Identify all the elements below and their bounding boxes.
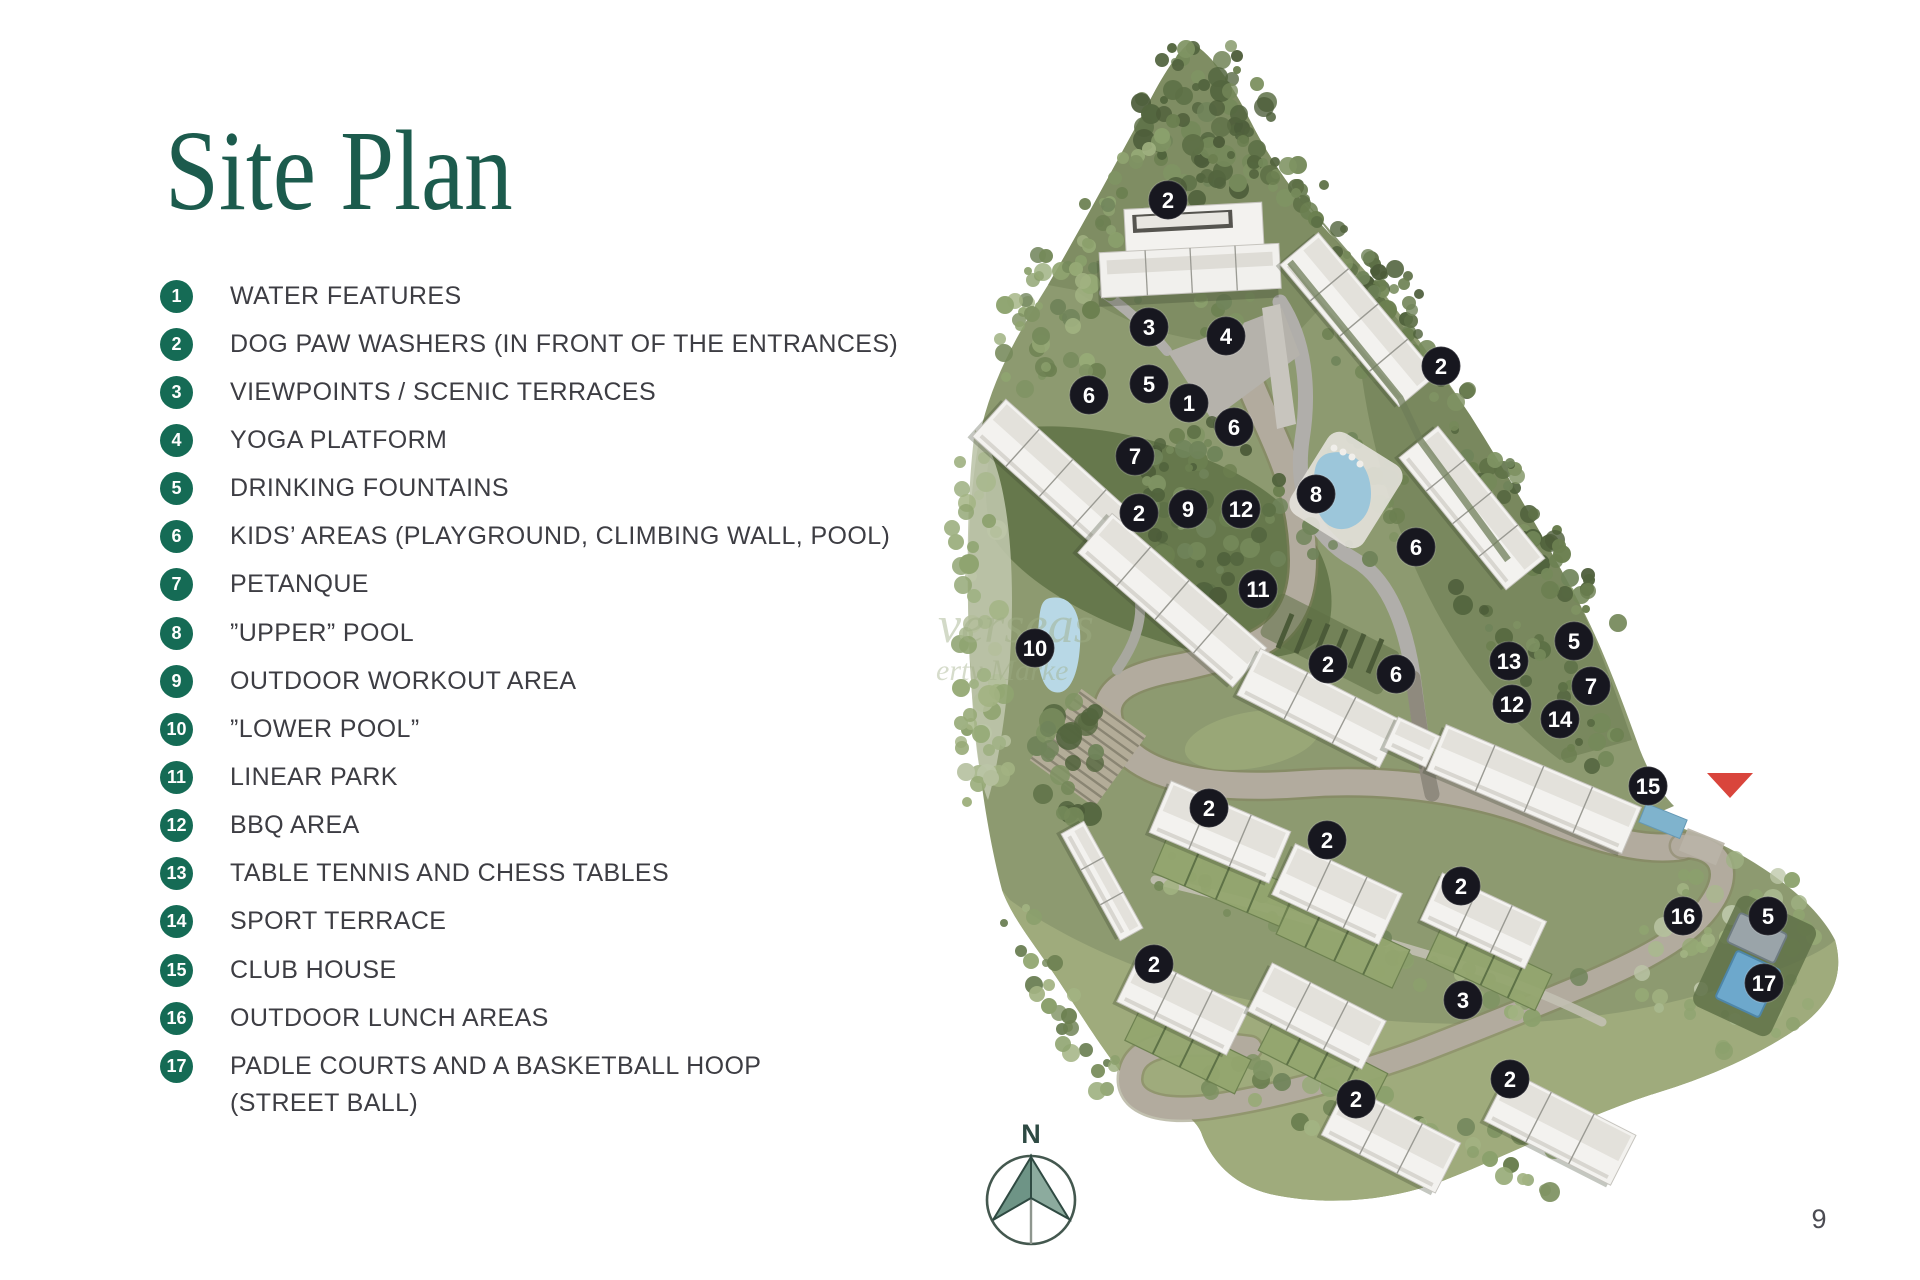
- svg-text:15: 15: [1636, 774, 1660, 799]
- svg-text:2: 2: [1162, 188, 1174, 213]
- svg-text:6: 6: [1228, 415, 1240, 440]
- svg-text:7: 7: [1129, 444, 1141, 469]
- svg-text:1: 1: [1183, 391, 1195, 416]
- svg-text:9: 9: [1811, 1204, 1826, 1234]
- svg-text:3: 3: [1143, 315, 1155, 340]
- svg-text:2: 2: [1322, 652, 1334, 677]
- svg-text:5: 5: [1568, 629, 1580, 654]
- svg-text:7: 7: [1585, 674, 1597, 699]
- svg-text:11: 11: [1246, 577, 1269, 602]
- svg-text:6: 6: [1390, 662, 1402, 687]
- svg-text:2: 2: [1203, 796, 1215, 821]
- svg-text:2: 2: [1321, 828, 1333, 853]
- svg-text:2: 2: [1504, 1067, 1516, 1092]
- svg-text:13: 13: [1497, 649, 1521, 674]
- svg-text:16: 16: [1671, 904, 1695, 929]
- svg-text:6: 6: [1410, 535, 1422, 560]
- svg-text:5: 5: [1143, 372, 1155, 397]
- svg-text:12: 12: [1229, 497, 1253, 522]
- svg-text:12: 12: [1500, 692, 1524, 717]
- svg-text:6: 6: [1083, 383, 1095, 408]
- svg-text:9: 9: [1182, 497, 1194, 522]
- svg-text:2: 2: [1435, 354, 1447, 379]
- svg-text:2: 2: [1455, 874, 1467, 899]
- svg-text:5: 5: [1762, 904, 1774, 929]
- svg-text:3: 3: [1457, 988, 1469, 1013]
- svg-text:14: 14: [1548, 707, 1573, 732]
- svg-text:2: 2: [1133, 501, 1145, 526]
- svg-text:4: 4: [1220, 324, 1233, 349]
- svg-text:N: N: [1021, 1119, 1041, 1149]
- svg-text:2: 2: [1350, 1087, 1362, 1112]
- svg-text:10: 10: [1023, 636, 1047, 661]
- svg-text:2: 2: [1148, 952, 1160, 977]
- svg-text:8: 8: [1310, 482, 1322, 507]
- svg-text:17: 17: [1752, 971, 1776, 996]
